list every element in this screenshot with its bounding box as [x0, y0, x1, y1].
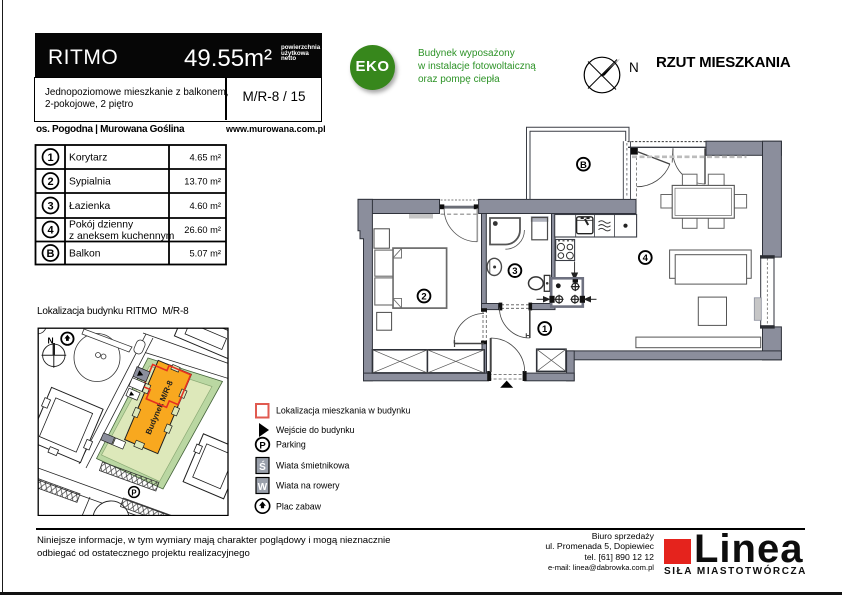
svg-text:4: 4	[47, 225, 54, 237]
svg-text:Łazienka: Łazienka	[69, 201, 110, 212]
svg-text:Balkon: Balkon	[69, 249, 101, 260]
svg-text:P: P	[259, 441, 266, 452]
svg-text:Lokalizacja mieszkania w budyn: Lokalizacja mieszkania w budynku	[276, 406, 411, 416]
svg-text:2: 2	[421, 292, 426, 303]
svg-text:Sypialnia: Sypialnia	[69, 177, 111, 188]
svg-text:2: 2	[47, 176, 53, 188]
svg-text:z aneksem kuchennym: z aneksem kuchennym	[69, 231, 174, 242]
svg-text:4: 4	[643, 253, 649, 264]
svg-text:B: B	[47, 248, 55, 260]
svg-text:Plac zabaw: Plac zabaw	[276, 502, 322, 512]
svg-text:Ś: Ś	[259, 460, 266, 473]
svg-text:Korytarz: Korytarz	[69, 153, 107, 164]
svg-text:W: W	[258, 482, 268, 493]
svg-text:26.60 m²: 26.60 m²	[184, 225, 221, 235]
svg-text:Wiata śmietnikowa: Wiata śmietnikowa	[276, 461, 349, 471]
svg-text:Wiata na rowery: Wiata na rowery	[276, 481, 340, 491]
svg-text:N: N	[48, 336, 54, 346]
svg-text:Wejście do budynku: Wejście do budynku	[276, 425, 355, 435]
svg-text:N: N	[629, 60, 639, 75]
svg-text:3: 3	[47, 201, 53, 213]
svg-text:3: 3	[512, 266, 517, 277]
svg-text:1: 1	[47, 152, 53, 164]
svg-text:4.65 m²: 4.65 m²	[189, 152, 221, 162]
svg-text:5.07 m²: 5.07 m²	[189, 248, 221, 258]
svg-text:4.60 m²: 4.60 m²	[189, 201, 221, 211]
svg-text:Pokój dzienny: Pokój dzienny	[69, 219, 134, 230]
svg-text:B: B	[580, 160, 587, 171]
svg-text:13.70 m²: 13.70 m²	[184, 176, 221, 186]
svg-text:Parking: Parking	[276, 440, 306, 450]
svg-text:1: 1	[542, 324, 548, 335]
svg-text:P: P	[131, 488, 136, 497]
